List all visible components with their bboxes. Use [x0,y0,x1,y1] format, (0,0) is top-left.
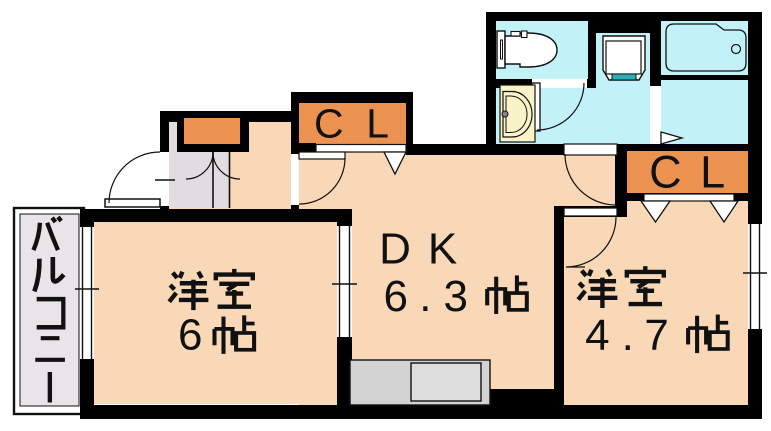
svg-text:3: 3 [443,272,467,321]
svg-text:6: 6 [178,311,202,360]
svg-text:L: L [700,147,725,198]
svg-text:L: L [366,101,389,147]
svg-text:4: 4 [585,311,609,360]
svg-text:6: 6 [383,272,407,321]
svg-text:K: K [428,225,457,274]
svg-text:.: . [419,272,431,321]
svg-text:C: C [314,101,344,147]
svg-text:D: D [379,225,411,274]
svg-text:7: 7 [644,311,668,360]
svg-text:C: C [649,147,682,198]
svg-text:.: . [622,311,634,360]
